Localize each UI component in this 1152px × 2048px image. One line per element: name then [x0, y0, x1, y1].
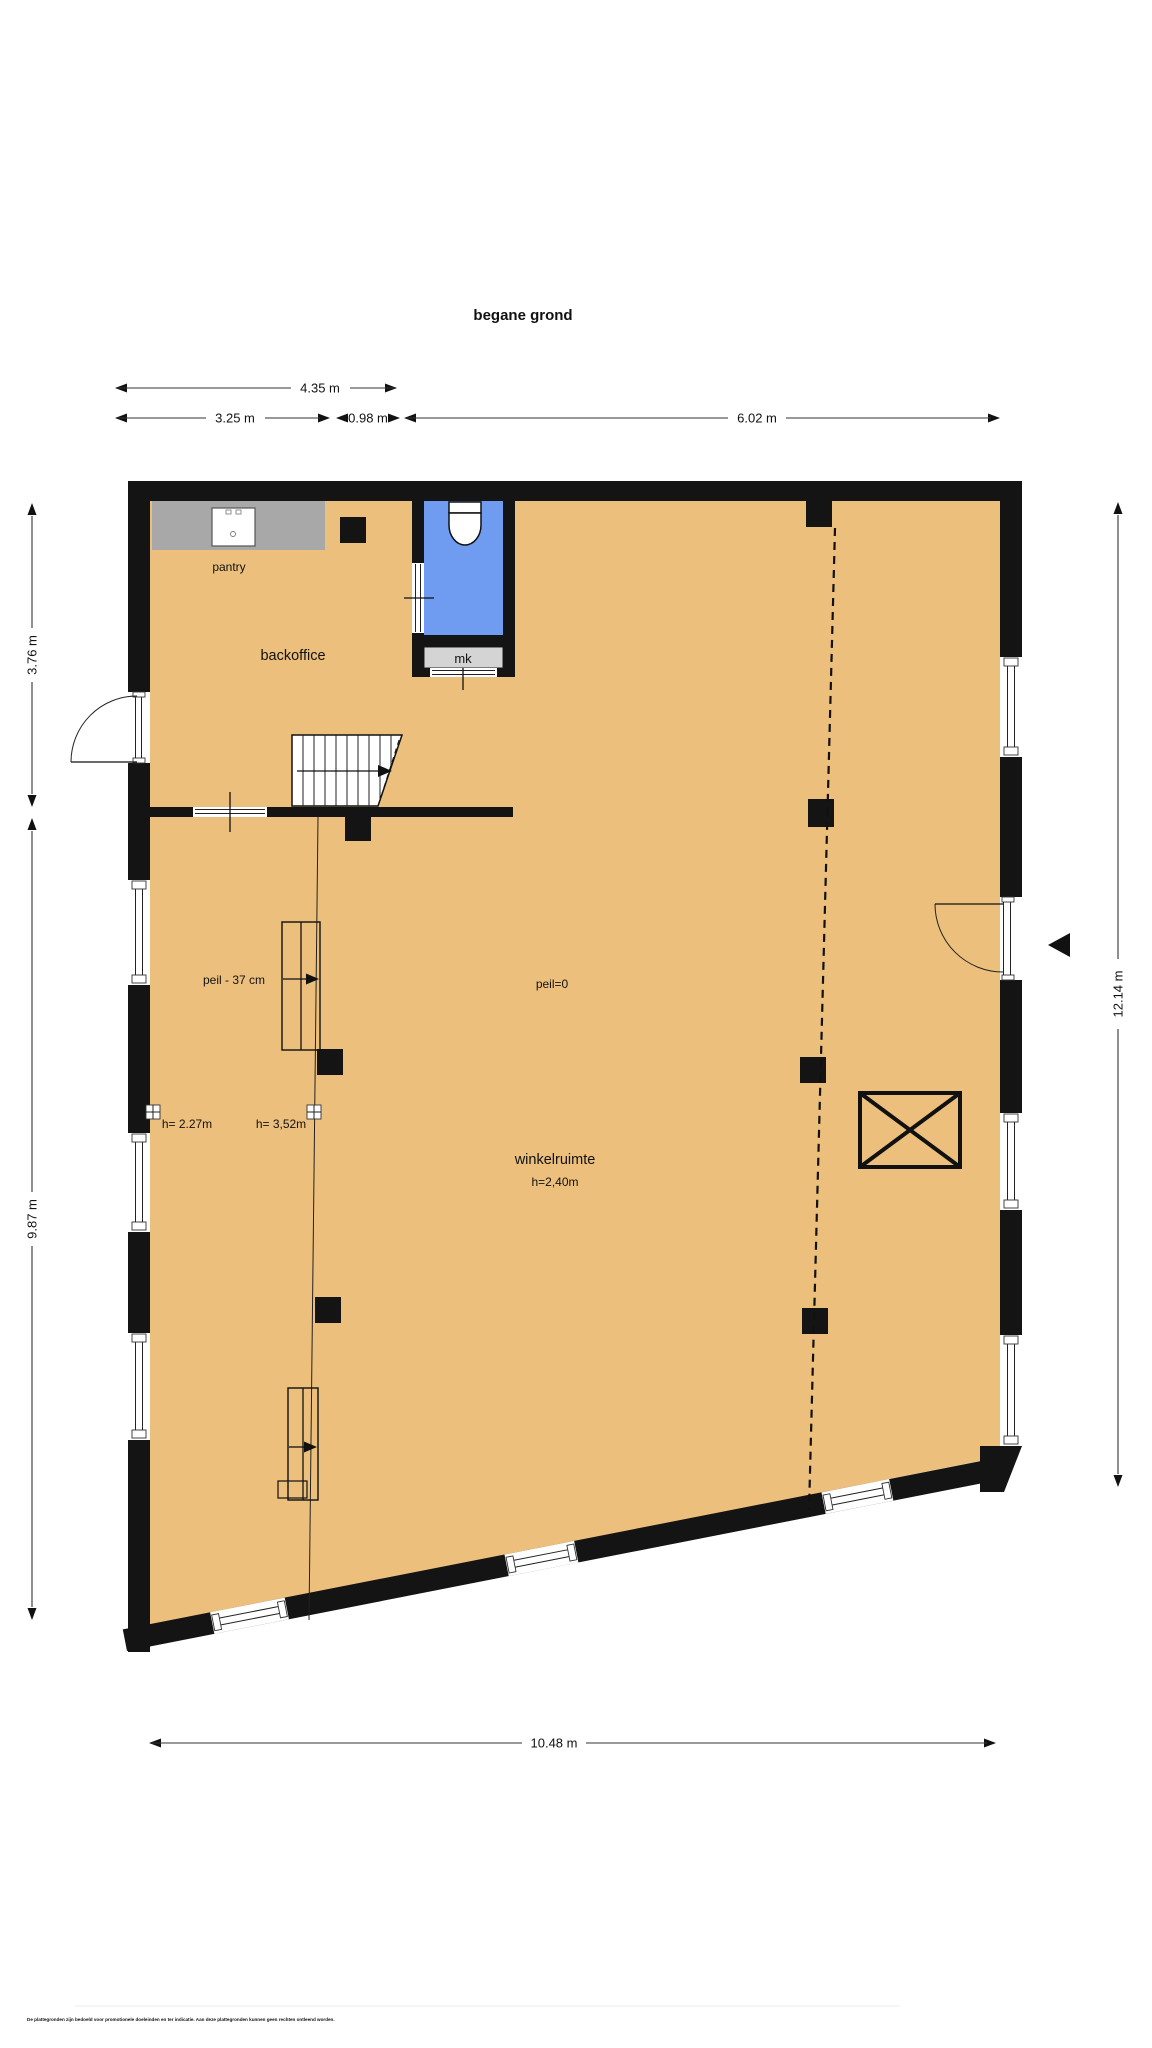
dimension-left-lower: 9.87 m: [25, 818, 40, 1620]
window-left-2: [128, 1133, 150, 1232]
dimension-top-overall: 4.35 m: [115, 381, 397, 396]
wall-top: [128, 481, 1022, 501]
svg-text:12.14 m: 12.14 m: [1111, 971, 1126, 1018]
height-marker-middle: [307, 1105, 321, 1119]
mk-label: mk: [454, 651, 472, 666]
sink-icon: [212, 508, 255, 546]
toilet-icon: [449, 502, 481, 545]
shop-label: winkelruimte: [514, 1152, 596, 1168]
level-zero-label: peil=0: [536, 977, 569, 991]
column: [808, 799, 834, 827]
column: [317, 1049, 343, 1075]
dimension-left-upper: 3.76 m: [25, 503, 40, 807]
window-right-1: [1000, 657, 1022, 757]
column: [340, 517, 366, 543]
dimension-bottom: 10.48 m: [149, 1736, 996, 1751]
pantry-label: pantry: [212, 560, 245, 574]
dimension-right: 12.14 m: [1111, 502, 1126, 1487]
svg-text:0.98 m: 0.98 m: [348, 411, 388, 426]
window-right-2: [1000, 1113, 1022, 1210]
column: [806, 501, 832, 527]
svg-text:3.76 m: 3.76 m: [25, 635, 40, 675]
toilet-right-wall: [503, 501, 515, 677]
dimension-top-middle: 0.98 m: [336, 411, 400, 426]
svg-text:3.25 m: 3.25 m: [215, 411, 255, 426]
height-marker-left: [146, 1105, 160, 1119]
column: [345, 815, 371, 841]
floorplan-canvas: begane grond: [0, 0, 1152, 2048]
column: [800, 1057, 826, 1083]
window-left-3: [128, 1333, 150, 1440]
shop-height-label: h=2,40m: [531, 1175, 578, 1189]
height-middle-label: h= 3,52m: [256, 1117, 306, 1131]
disclaimer-text: De plattegronden zijn bedoeld voor promo…: [27, 2017, 335, 2022]
svg-text:6.02 m: 6.02 m: [737, 411, 777, 426]
window-left-1: [128, 880, 150, 985]
level-lowered-label: peil - 37 cm: [203, 973, 265, 987]
left-door: [71, 692, 150, 763]
toilet-mk-divider-wall: [424, 635, 503, 647]
page-title: begane grond: [473, 307, 572, 324]
floorplan-page: begane grond: [0, 0, 1152, 2048]
wall-left: [128, 481, 150, 1652]
entrance-arrow-icon: [1048, 933, 1070, 957]
height-left-label: h= 2.27m: [162, 1117, 212, 1131]
svg-text:4.35 m: 4.35 m: [300, 381, 340, 396]
dimension-top-left: 3.25 m: [115, 411, 330, 426]
backoffice-label: backoffice: [260, 648, 325, 664]
window-right-3: [1000, 1335, 1022, 1446]
dimension-top-right: 6.02 m: [404, 411, 1000, 426]
svg-text:10.48 m: 10.48 m: [531, 1736, 578, 1751]
column: [315, 1297, 341, 1323]
svg-text:9.87 m: 9.87 m: [25, 1199, 40, 1239]
